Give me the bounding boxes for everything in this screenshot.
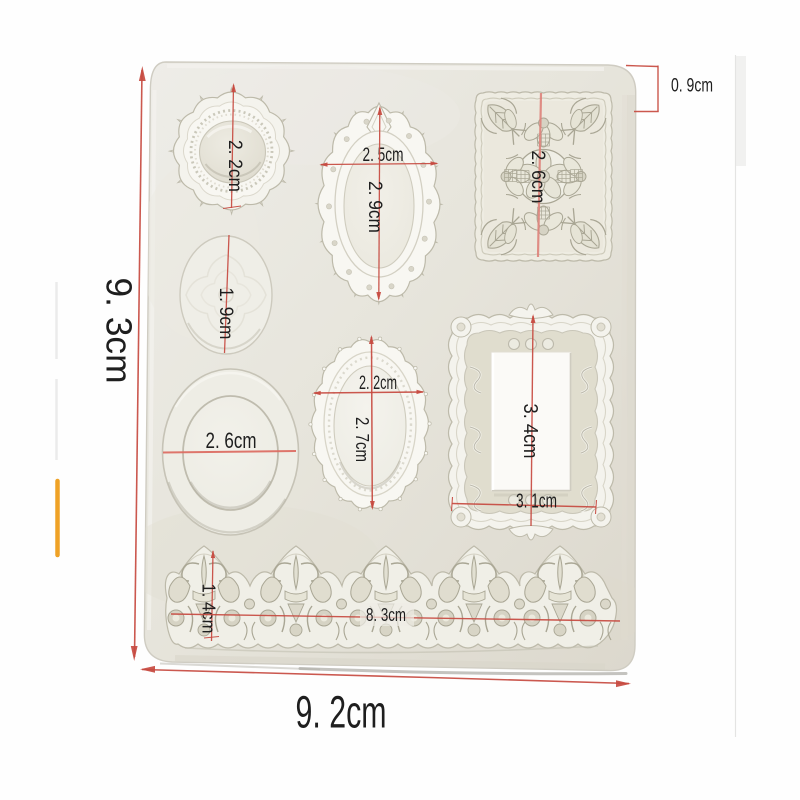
svg-text:1. 4cm: 1. 4cm <box>199 584 219 634</box>
svg-text:9. 3cm: 9. 3cm <box>99 278 140 384</box>
svg-text:2. 2cm: 2. 2cm <box>359 373 397 394</box>
svg-text:3. 1cm: 3. 1cm <box>516 491 557 513</box>
svg-text:2. 5cm: 2. 5cm <box>363 145 404 166</box>
svg-text:2. 2cm: 2. 2cm <box>224 140 246 192</box>
svg-text:8. 3cm: 8. 3cm <box>366 605 406 625</box>
svg-text:0. 9cm: 0. 9cm <box>671 76 713 97</box>
svg-text:9. 2cm: 9. 2cm <box>296 687 387 738</box>
svg-text:1. 9cm: 1. 9cm <box>215 288 236 340</box>
svg-text:2. 6cm: 2. 6cm <box>527 151 548 204</box>
svg-text:2. 6cm: 2. 6cm <box>206 428 257 453</box>
svg-text:3. 4cm: 3. 4cm <box>519 404 541 459</box>
svg-text:2. 7cm: 2. 7cm <box>352 417 373 462</box>
svg-text:2. 9cm: 2. 9cm <box>364 181 385 233</box>
